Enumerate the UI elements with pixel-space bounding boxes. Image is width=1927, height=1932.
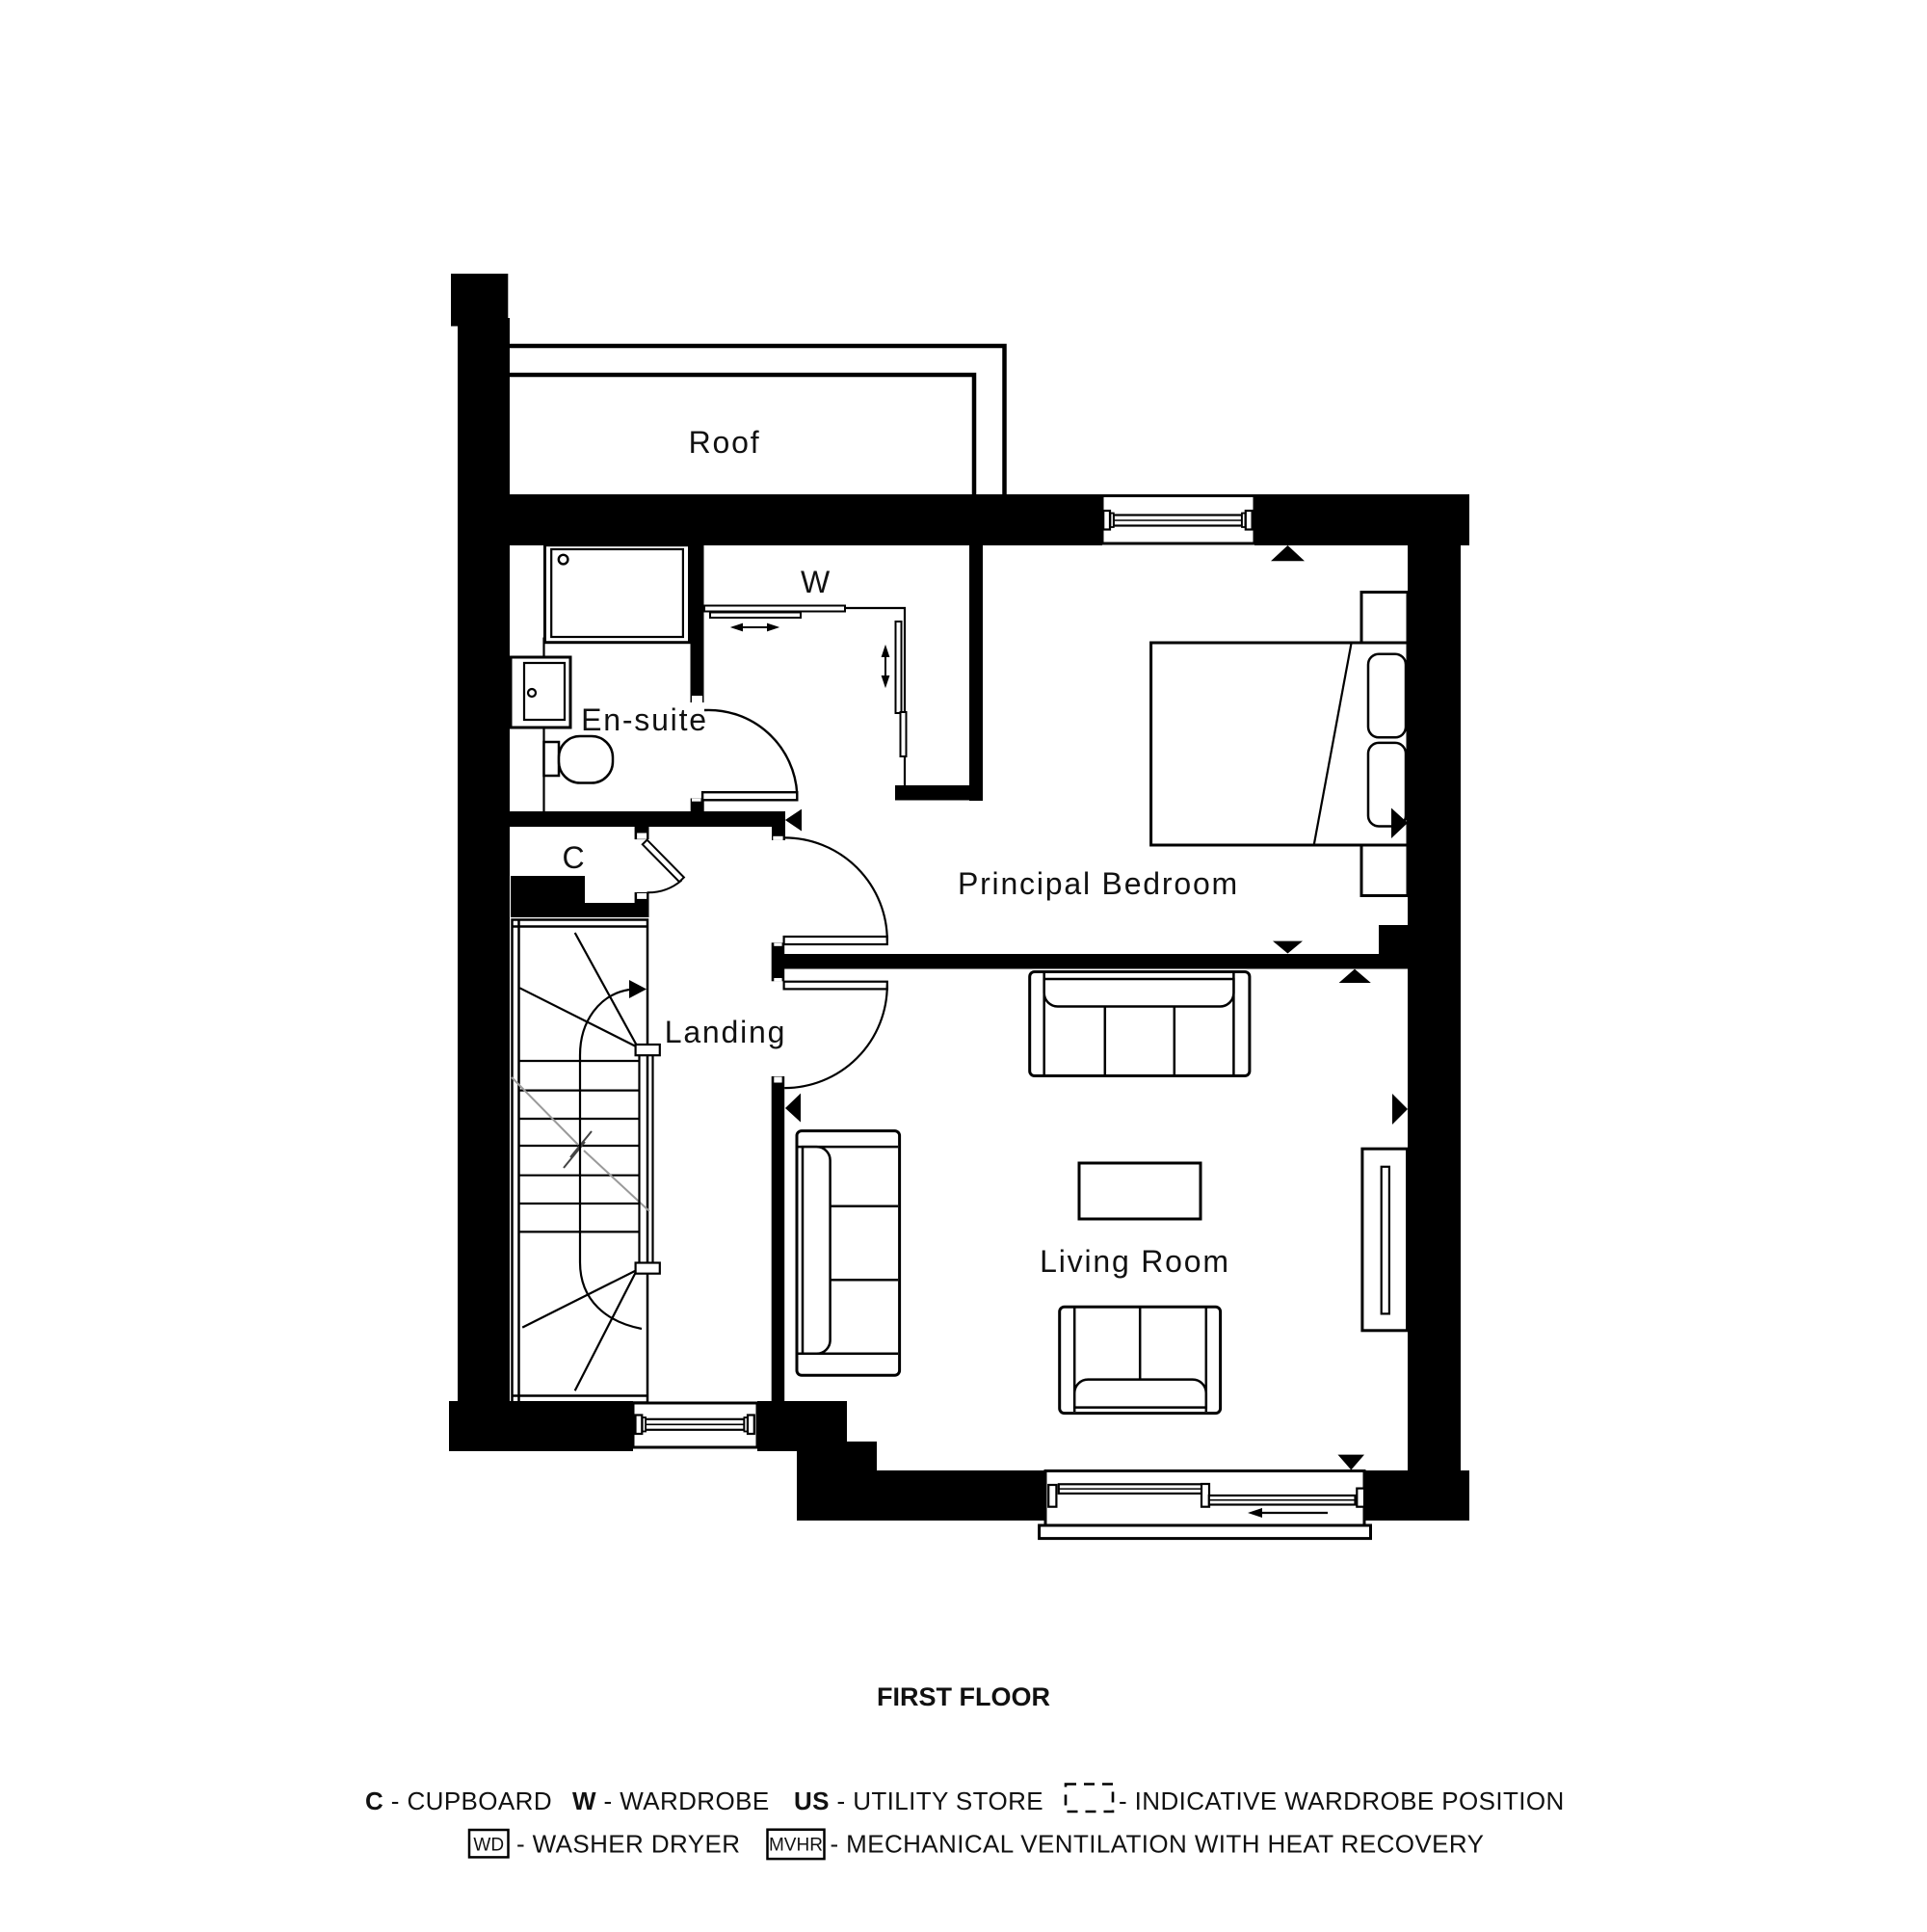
svg-text:Principal Bedroom: Principal Bedroom: [958, 866, 1239, 901]
svg-text:C - CUPBOARD: C - CUPBOARD: [365, 1786, 552, 1815]
svg-text:US - UTILITY STORE: US - UTILITY STORE: [794, 1786, 1043, 1815]
svg-text:- INDICATIVE WARDROBE POSITION: - INDICATIVE WARDROBE POSITION: [1119, 1786, 1565, 1815]
svg-text:Living Room: Living Room: [1040, 1244, 1230, 1279]
svg-text:C: C: [563, 840, 587, 875]
svg-text:FIRST FLOOR: FIRST FLOOR: [877, 1682, 1050, 1711]
svg-text:Roof: Roof: [689, 425, 761, 460]
svg-text:Landing: Landing: [665, 1015, 787, 1049]
svg-text:MVHR: MVHR: [769, 1836, 823, 1856]
svg-text:W - WARDROBE: W - WARDROBE: [572, 1786, 770, 1815]
svg-text:W: W: [801, 565, 832, 599]
svg-text:WD: WD: [473, 1836, 504, 1856]
svg-text:En-suite: En-suite: [581, 702, 708, 737]
svg-text:- WASHER DRYER: - WASHER DRYER: [516, 1830, 740, 1859]
svg-text:- MECHANICAL VENTILATION WITH: - MECHANICAL VENTILATION WITH HEAT RECOV…: [830, 1830, 1484, 1859]
